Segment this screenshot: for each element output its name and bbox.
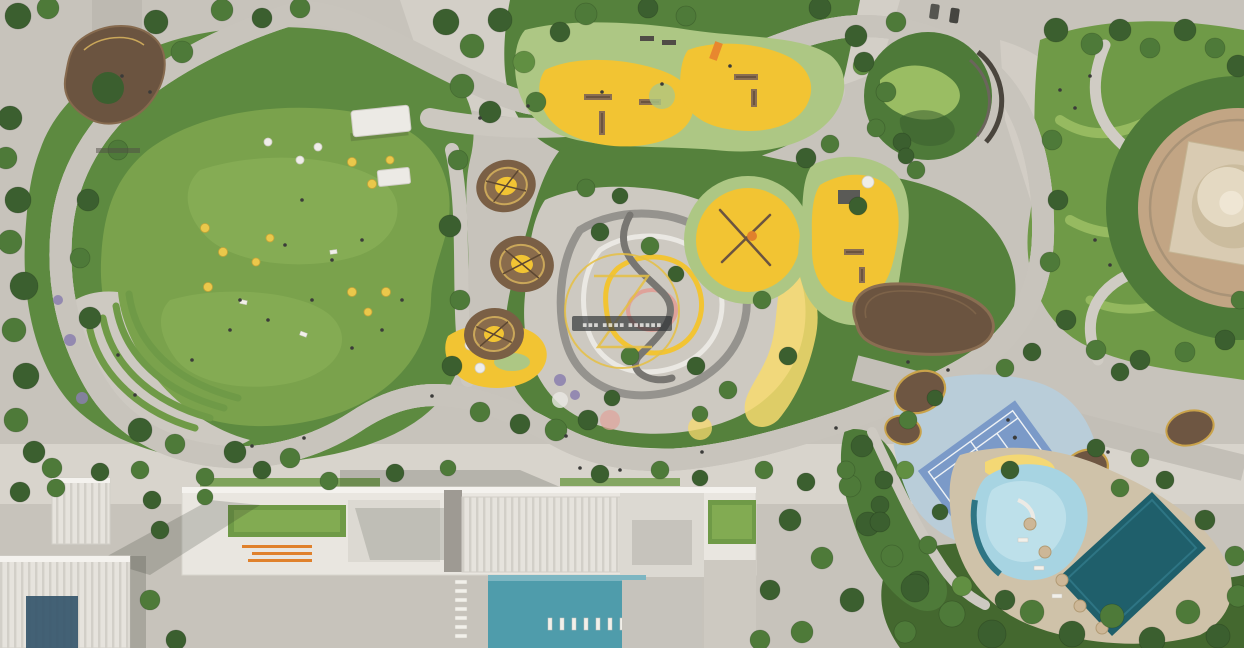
park-aerial-render: South promenade West street Hill garden … [0, 0, 1244, 648]
render-canvas: South promenade West street Hill garden … [0, 0, 1244, 648]
roof-markings [242, 545, 312, 562]
crosswalk [96, 148, 140, 153]
central-playground: Round playground [684, 176, 812, 304]
watermark-caption: ▪▪▪ ▪▪▪▪ ▪▪▪▪▪▪ [582, 320, 662, 329]
